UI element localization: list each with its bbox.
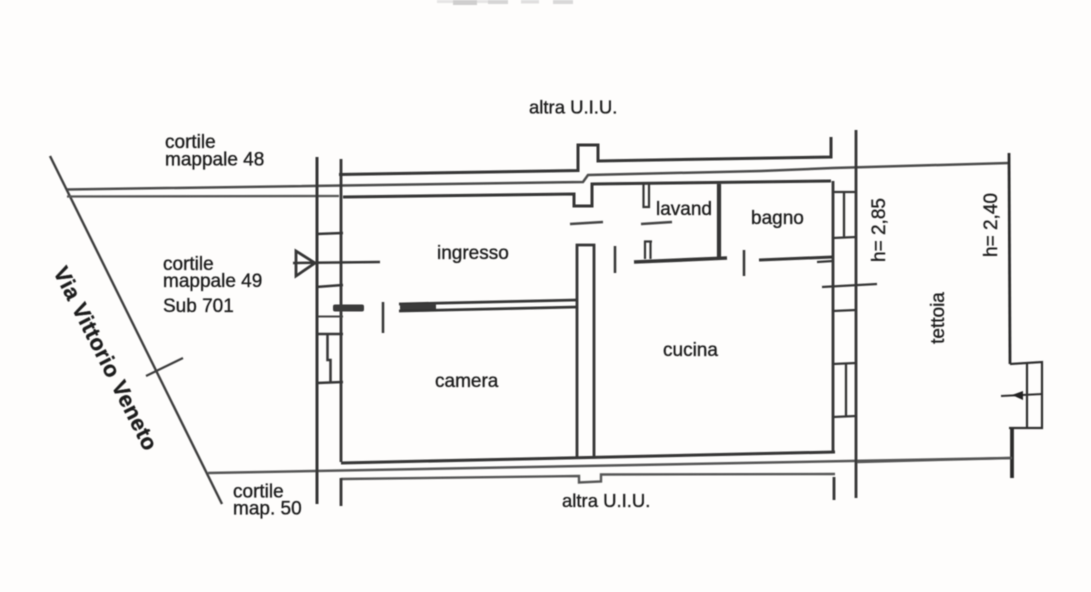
svg-text:map. 50: map. 50 [233,499,302,520]
svg-text:mappale 48: mappale 48 [165,150,264,171]
svg-text:h= 2,40: h= 2,40 [981,193,1002,257]
svg-text:mappale 49: mappale 49 [163,271,262,292]
svg-text:Via Vittorio Veneto: Via Vittorio Veneto [48,262,162,454]
svg-text:camera: camera [435,371,499,392]
svg-text:bagno: bagno [751,208,804,229]
svg-text:tettoia: tettoia [928,292,949,344]
svg-text:lavand: lavand [656,199,712,220]
svg-text:h= 2,85: h= 2,85 [869,198,890,262]
svg-text:Sub 701: Sub 701 [163,296,234,317]
svg-text:altra U.I.U.: altra U.I.U. [562,490,650,511]
svg-text:cucina: cucina [663,340,718,361]
svg-text:ingresso: ingresso [437,243,509,264]
svg-text:altra U.I.U.: altra U.I.U. [529,97,617,118]
